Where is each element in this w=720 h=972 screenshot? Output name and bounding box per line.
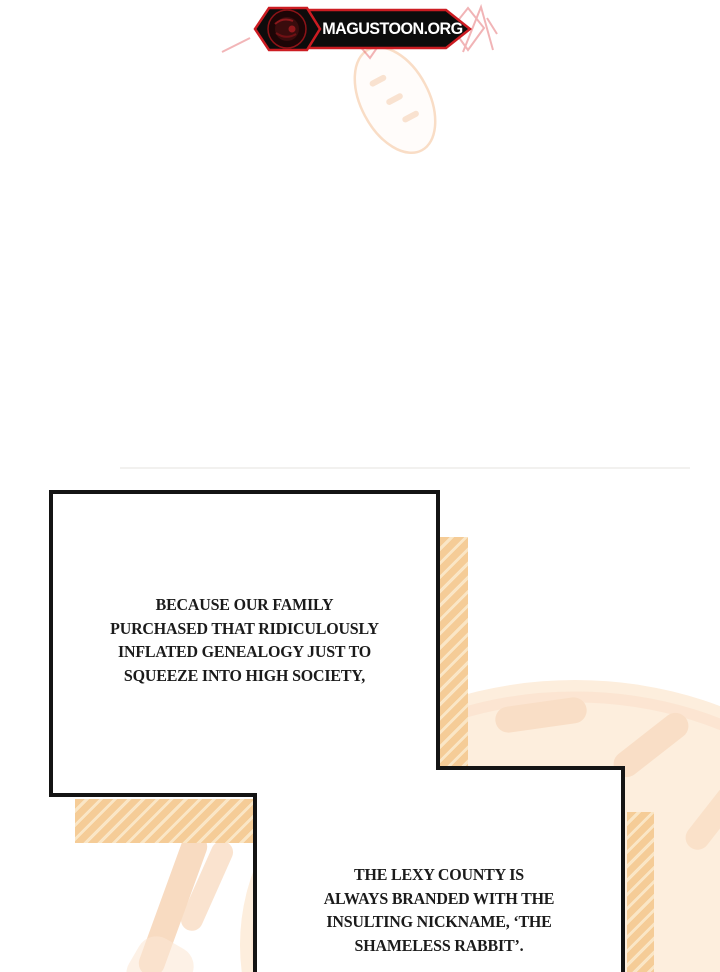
speech-panels-outline: [0, 0, 720, 972]
site-logo-text: MAGUSTOON.ORG: [322, 20, 446, 38]
speech-bubble-1: BECAUSE OUR FAMILY PURCHASED THAT RIDICU…: [63, 593, 427, 687]
webtoon-page: BECAUSE OUR FAMILY PURCHASED THAT RIDICU…: [0, 0, 720, 972]
speech-bubble-2: THE LEXY COUNTY IS ALWAYS BRANDED WITH T…: [266, 863, 612, 957]
logo-emblem-icon: [268, 10, 306, 48]
